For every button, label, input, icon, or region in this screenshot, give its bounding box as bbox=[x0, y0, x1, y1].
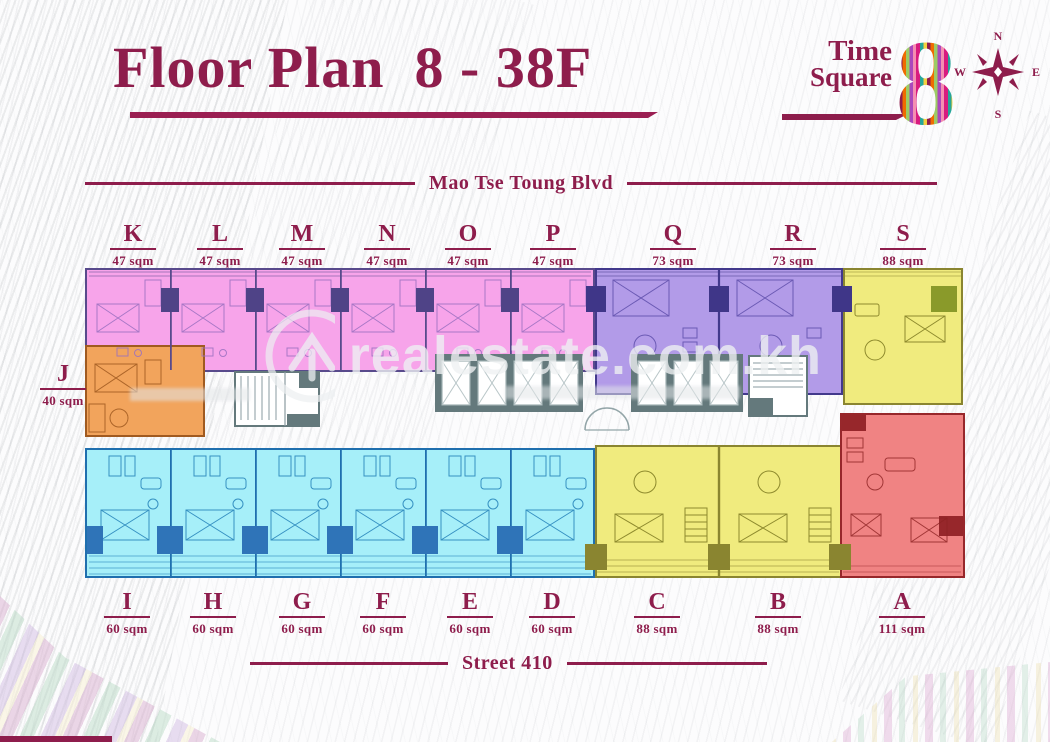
compass-e: E bbox=[1032, 65, 1040, 79]
unit-area: 60 sqm bbox=[265, 621, 339, 637]
street-name: Mao Tse Toung Blvd bbox=[429, 172, 613, 195]
unit-letter: L bbox=[197, 222, 243, 250]
unit-letter: G bbox=[279, 590, 325, 618]
unit-label-B: B88 sqm bbox=[741, 590, 815, 637]
unit-label-G: G60 sqm bbox=[265, 590, 339, 637]
floor-range-text: 8 - 38F bbox=[415, 35, 593, 100]
title-text: Floor Plan bbox=[113, 35, 385, 100]
unit-letter: P bbox=[530, 222, 576, 250]
unit-area: 88 sqm bbox=[866, 253, 940, 269]
unit-letter: J bbox=[40, 362, 86, 390]
unit-area: 47 sqm bbox=[96, 253, 170, 269]
unit-label-L: L47 sqm bbox=[183, 222, 257, 269]
logo-word-square: Square bbox=[780, 65, 892, 90]
unit-label-N: N47 sqm bbox=[350, 222, 424, 269]
compass-w: W bbox=[954, 65, 966, 79]
unit-area: 88 sqm bbox=[741, 621, 815, 637]
page-title: Floor Plan8 - 38F bbox=[113, 34, 592, 101]
unit-letter: C bbox=[634, 590, 680, 618]
unit-letter: A bbox=[879, 590, 925, 618]
unit-letter: R bbox=[770, 222, 816, 250]
unit-letter: B bbox=[755, 590, 801, 618]
unit-label-E: E60 sqm bbox=[433, 590, 507, 637]
unit-label-P: P47 sqm bbox=[516, 222, 590, 269]
unit-label-D: D60 sqm bbox=[515, 590, 589, 637]
unit-label-R: R73 sqm bbox=[756, 222, 830, 269]
maroon-edge-bar bbox=[0, 736, 112, 742]
unit-letter: O bbox=[445, 222, 491, 250]
unit-area: 47 sqm bbox=[265, 253, 339, 269]
unit-label-A: A111 sqm bbox=[865, 590, 939, 637]
unit-area: 60 sqm bbox=[515, 621, 589, 637]
compass-s: S bbox=[995, 107, 1002, 121]
compass-rose: N E S W bbox=[950, 26, 1046, 130]
unit-label-S: S88 sqm bbox=[866, 222, 940, 269]
floorplan-detail-layer bbox=[85, 268, 965, 578]
unit-area: 73 sqm bbox=[756, 253, 830, 269]
street-line bbox=[627, 182, 937, 185]
title-underline bbox=[130, 112, 658, 118]
watermark-subtext-blur bbox=[130, 388, 250, 401]
unit-letter: I bbox=[104, 590, 150, 618]
unit-label-C: C88 sqm bbox=[620, 590, 694, 637]
unit-letter: D bbox=[529, 590, 575, 618]
floor-plan-page: Floor Plan8 - 38F Time Square 8 bbox=[0, 0, 1050, 742]
street-line bbox=[250, 662, 448, 665]
unit-area: 60 sqm bbox=[346, 621, 420, 637]
unit-letter: F bbox=[360, 590, 406, 618]
unit-area: 60 sqm bbox=[90, 621, 164, 637]
unit-area: 88 sqm bbox=[620, 621, 694, 637]
logo-word-time: Time bbox=[780, 38, 892, 65]
unit-area: 47 sqm bbox=[350, 253, 424, 269]
unit-area: 40 sqm bbox=[26, 393, 100, 409]
unit-area: 47 sqm bbox=[431, 253, 505, 269]
unit-letter: N bbox=[364, 222, 410, 250]
unit-label-K: K47 sqm bbox=[96, 222, 170, 269]
unit-label-M: M47 sqm bbox=[265, 222, 339, 269]
unit-letter: E bbox=[447, 590, 493, 618]
watermark-subtext-blur bbox=[505, 386, 740, 399]
unit-label-F: F60 sqm bbox=[346, 590, 420, 637]
floor-plan bbox=[85, 268, 965, 578]
street-label-bottom: Street 410 bbox=[250, 652, 810, 675]
unit-label-I: I60 sqm bbox=[90, 590, 164, 637]
unit-area: 111 sqm bbox=[865, 621, 939, 637]
unit-letter: S bbox=[880, 222, 926, 250]
street-line bbox=[85, 182, 415, 185]
street-name: Street 410 bbox=[462, 652, 553, 675]
unit-label-O: O47 sqm bbox=[431, 222, 505, 269]
compass-n: N bbox=[994, 29, 1003, 43]
unit-label-Q: Q73 sqm bbox=[636, 222, 710, 269]
unit-area: 47 sqm bbox=[183, 253, 257, 269]
unit-area: 47 sqm bbox=[516, 253, 590, 269]
unit-letter: M bbox=[279, 222, 325, 250]
street-label-top: Mao Tse Toung Blvd bbox=[85, 172, 965, 195]
unit-letter: Q bbox=[650, 222, 696, 250]
svg-text:8: 8 bbox=[896, 24, 957, 142]
unit-area: 60 sqm bbox=[176, 621, 250, 637]
unit-label-H: H60 sqm bbox=[176, 590, 250, 637]
unit-letter: K bbox=[110, 222, 156, 250]
street-line bbox=[567, 662, 767, 665]
unit-area: 73 sqm bbox=[636, 253, 710, 269]
unit-area: 60 sqm bbox=[433, 621, 507, 637]
logo-wordmark: Time Square bbox=[780, 38, 892, 90]
unit-label-J: J40 sqm bbox=[26, 362, 100, 409]
pastel-stripes-decoration bbox=[802, 662, 1050, 742]
unit-letter: H bbox=[190, 590, 236, 618]
